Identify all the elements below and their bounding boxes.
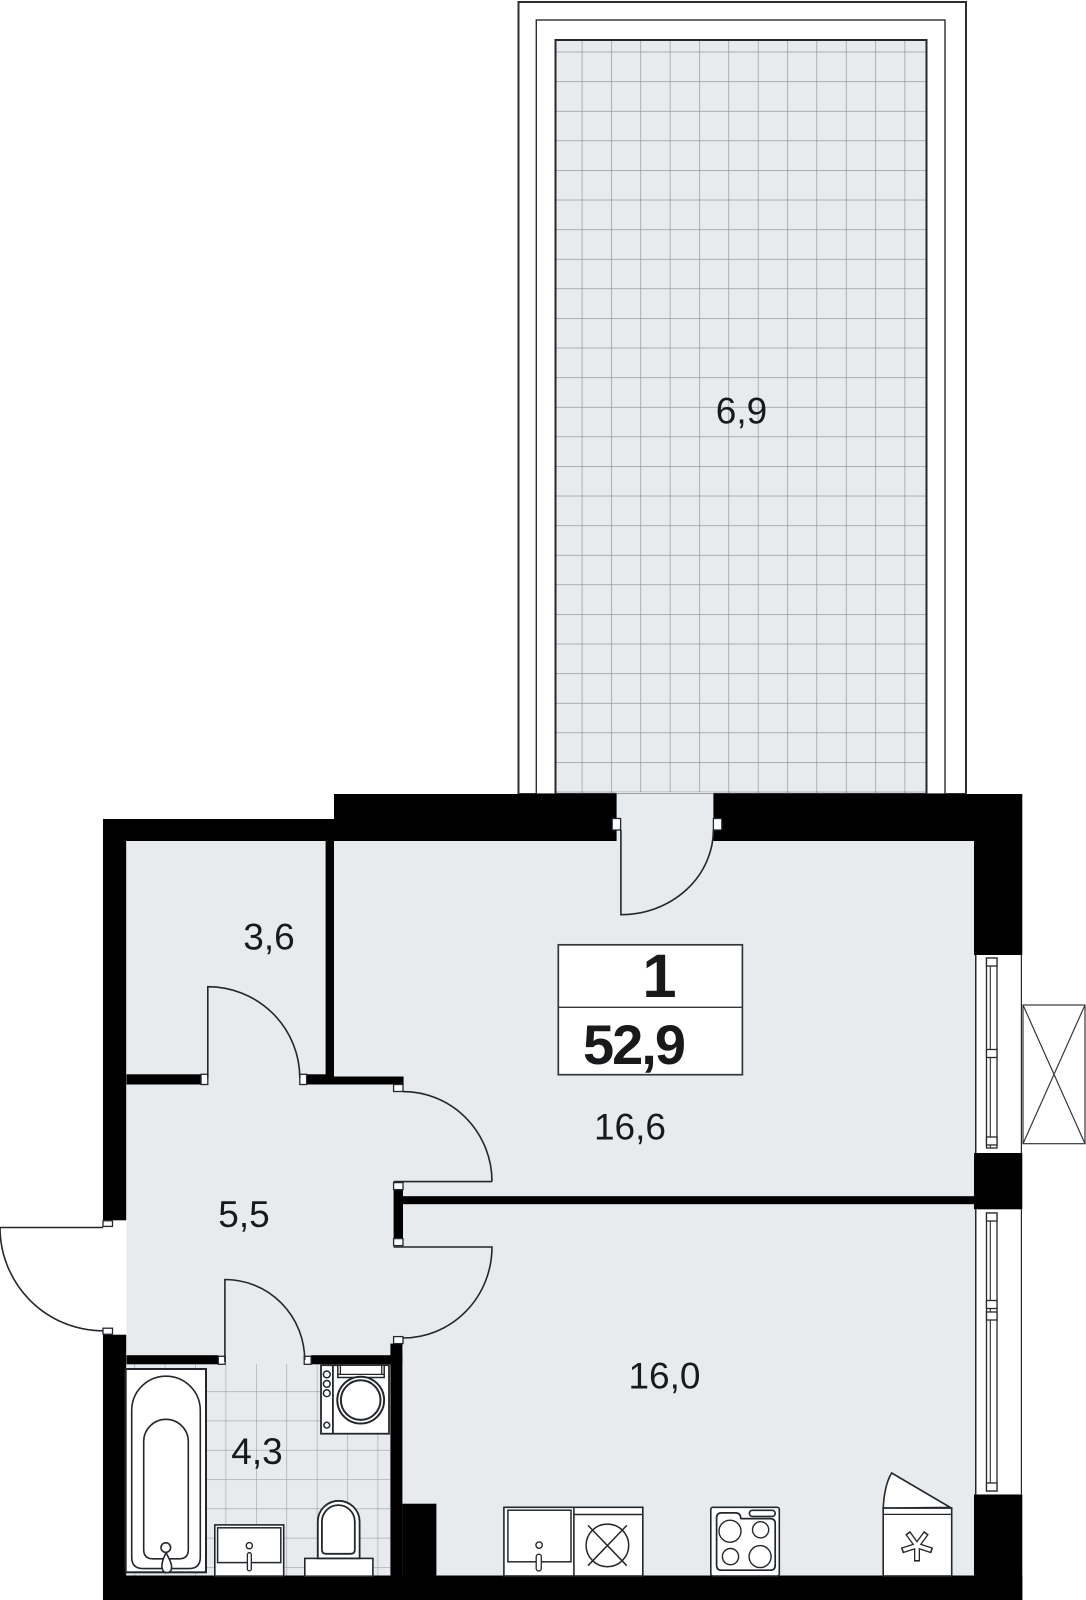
- svg-text:1: 1: [642, 942, 676, 1011]
- svg-text:16,0: 16,0: [628, 1356, 700, 1397]
- svg-text:16,6: 16,6: [594, 1107, 666, 1148]
- svg-text:3,6: 3,6: [243, 917, 294, 958]
- svg-text:52,9: 52,9: [583, 1013, 685, 1076]
- svg-text:5,5: 5,5: [218, 1194, 269, 1235]
- svg-text:6,9: 6,9: [716, 391, 767, 432]
- svg-text:4,3: 4,3: [231, 1431, 282, 1472]
